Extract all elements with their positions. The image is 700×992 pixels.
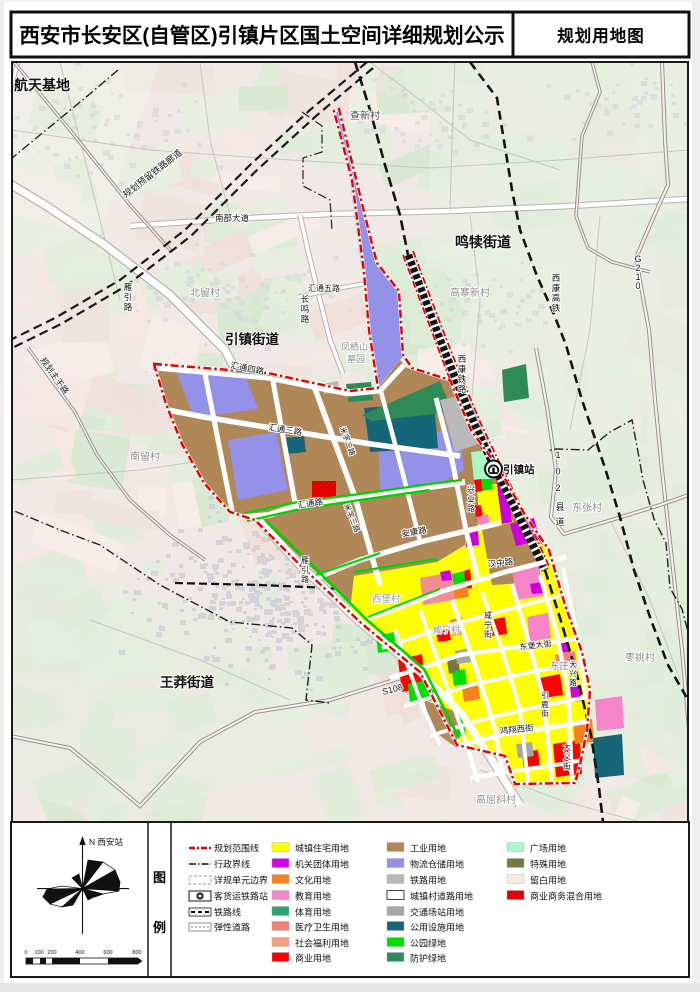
svg-text:义: 义 bbox=[563, 753, 571, 762]
svg-text:枣姚村: 枣姚村 bbox=[625, 651, 655, 664]
svg-text:路: 路 bbox=[467, 503, 475, 513]
svg-text:客货运铁路站: 客货运铁路站 bbox=[214, 891, 268, 902]
svg-text:医疗卫生用地: 医疗卫生用地 bbox=[295, 922, 349, 933]
svg-text:西: 西 bbox=[552, 273, 561, 283]
svg-text:咸: 咸 bbox=[484, 610, 492, 620]
svg-text:社会福利用地: 社会福利用地 bbox=[295, 938, 349, 949]
svg-text:铁路线: 铁路线 bbox=[214, 907, 241, 918]
svg-text:汇通五路: 汇通五路 bbox=[308, 283, 340, 293]
svg-text:鸣犊街道: 鸣犊街道 bbox=[455, 234, 511, 250]
svg-text:雁: 雁 bbox=[301, 556, 309, 565]
svg-text:县: 县 bbox=[555, 502, 564, 512]
svg-text:0: 0 bbox=[635, 281, 640, 291]
svg-text:街: 街 bbox=[541, 708, 549, 718]
svg-text:商业用地: 商业用地 bbox=[295, 953, 331, 964]
svg-text:例: 例 bbox=[153, 920, 166, 935]
svg-text:路: 路 bbox=[124, 302, 133, 312]
svg-text:东张村: 东张村 bbox=[572, 501, 602, 514]
svg-text:鹿: 鹿 bbox=[541, 699, 549, 709]
svg-text:铁: 铁 bbox=[552, 303, 561, 313]
svg-text:体育用地: 体育用地 bbox=[295, 907, 331, 918]
svg-text:路: 路 bbox=[301, 574, 309, 584]
svg-text:铁路用地: 铁路用地 bbox=[410, 875, 446, 886]
svg-text:工业用地: 工业用地 bbox=[410, 843, 446, 854]
svg-text:道: 道 bbox=[555, 516, 564, 527]
svg-text:特殊用地: 特殊用地 bbox=[530, 859, 566, 870]
svg-text:广场用地: 广场用地 bbox=[530, 843, 566, 854]
svg-text:N 西安站: N 西安站 bbox=[89, 837, 124, 847]
svg-text:高寨新村: 高寨新村 bbox=[450, 286, 490, 299]
svg-text:鸣: 鸣 bbox=[301, 304, 310, 314]
svg-text:凤栖山: 凤栖山 bbox=[341, 341, 368, 352]
svg-text:雁: 雁 bbox=[124, 282, 133, 292]
svg-text:0: 0 bbox=[24, 950, 27, 956]
svg-text:大: 大 bbox=[569, 659, 577, 669]
svg-text:业: 业 bbox=[467, 494, 475, 504]
svg-text:详规单元边界: 详规单元边界 bbox=[214, 875, 268, 886]
svg-text:规划范围线: 规划范围线 bbox=[214, 843, 259, 854]
svg-text:西安市长安区(自管区)引镇片区国土空间详细规划公示: 西安市长安区(自管区)引镇片区国土空间详细规划公示 bbox=[19, 24, 504, 48]
svg-text:图: 图 bbox=[153, 870, 166, 885]
svg-text:200: 200 bbox=[47, 950, 56, 956]
svg-text:交通场站用地: 交通场站用地 bbox=[410, 907, 464, 918]
svg-text:西堡村: 西堡村 bbox=[372, 593, 401, 605]
svg-text:400: 400 bbox=[75, 950, 84, 956]
svg-text:墓园: 墓园 bbox=[347, 353, 365, 364]
svg-text:行政界线: 行政界线 bbox=[214, 859, 250, 870]
svg-text:公园绿地: 公园绿地 bbox=[410, 938, 446, 949]
svg-text:康: 康 bbox=[458, 364, 467, 374]
svg-text:兴: 兴 bbox=[569, 669, 577, 678]
svg-text:高: 高 bbox=[552, 293, 561, 303]
svg-text:西: 西 bbox=[458, 354, 467, 364]
svg-text:引镇街道: 引镇街道 bbox=[225, 331, 279, 347]
svg-text:路: 路 bbox=[458, 384, 467, 394]
svg-text:1: 1 bbox=[555, 450, 560, 460]
svg-text:高屈斜村: 高屈斜村 bbox=[476, 793, 516, 806]
svg-text:800: 800 bbox=[132, 950, 141, 956]
svg-text:路: 路 bbox=[569, 677, 577, 687]
svg-text:引: 引 bbox=[541, 691, 549, 700]
svg-text:商业商务混合用地: 商业商务混合用地 bbox=[530, 891, 602, 902]
svg-text:教育用地: 教育用地 bbox=[295, 891, 331, 902]
svg-text:弹性道路: 弹性道路 bbox=[214, 922, 250, 933]
svg-text:航天基地: 航天基地 bbox=[14, 77, 70, 93]
svg-text:查新村: 查新村 bbox=[350, 109, 380, 122]
svg-text:2: 2 bbox=[555, 483, 560, 493]
svg-text:王莽街道: 王莽街道 bbox=[160, 674, 214, 690]
svg-text:防护绿地: 防护绿地 bbox=[410, 953, 446, 964]
svg-text:康: 康 bbox=[552, 283, 561, 293]
svg-text:引: 引 bbox=[301, 566, 309, 575]
svg-text:城镇村道路用地: 城镇村道路用地 bbox=[410, 891, 473, 902]
svg-text:兴: 兴 bbox=[467, 485, 475, 494]
svg-text:0: 0 bbox=[555, 467, 560, 477]
svg-text:大: 大 bbox=[563, 742, 571, 752]
svg-text:铁: 铁 bbox=[458, 374, 467, 384]
svg-text:宁: 宁 bbox=[484, 620, 492, 630]
svg-text:引镇站: 引镇站 bbox=[503, 463, 535, 476]
svg-text:留白用地: 留白用地 bbox=[530, 875, 566, 886]
svg-text:物流仓储用地: 物流仓储用地 bbox=[410, 859, 464, 870]
svg-text:路: 路 bbox=[301, 314, 310, 324]
svg-text:城镇住宅用地: 城镇住宅用地 bbox=[295, 843, 349, 854]
svg-text:公用设施用地: 公用设施用地 bbox=[410, 922, 464, 933]
svg-text:咸宁村: 咸宁村 bbox=[433, 624, 460, 635]
svg-text:北留村: 北留村 bbox=[190, 286, 220, 299]
svg-text:街: 街 bbox=[484, 629, 492, 639]
svg-text:600: 600 bbox=[103, 950, 112, 956]
svg-text:文化用地: 文化用地 bbox=[295, 875, 331, 886]
svg-text:南留村: 南留村 bbox=[130, 450, 160, 463]
svg-text:引: 引 bbox=[124, 292, 133, 302]
svg-text:机关团体用地: 机关团体用地 bbox=[295, 859, 349, 870]
svg-text:南部大道: 南部大道 bbox=[215, 213, 250, 223]
svg-text:规划用地图: 规划用地图 bbox=[557, 26, 645, 46]
svg-text:长: 长 bbox=[301, 294, 310, 304]
svg-text:街: 街 bbox=[563, 761, 571, 771]
svg-text:100: 100 bbox=[34, 950, 43, 956]
